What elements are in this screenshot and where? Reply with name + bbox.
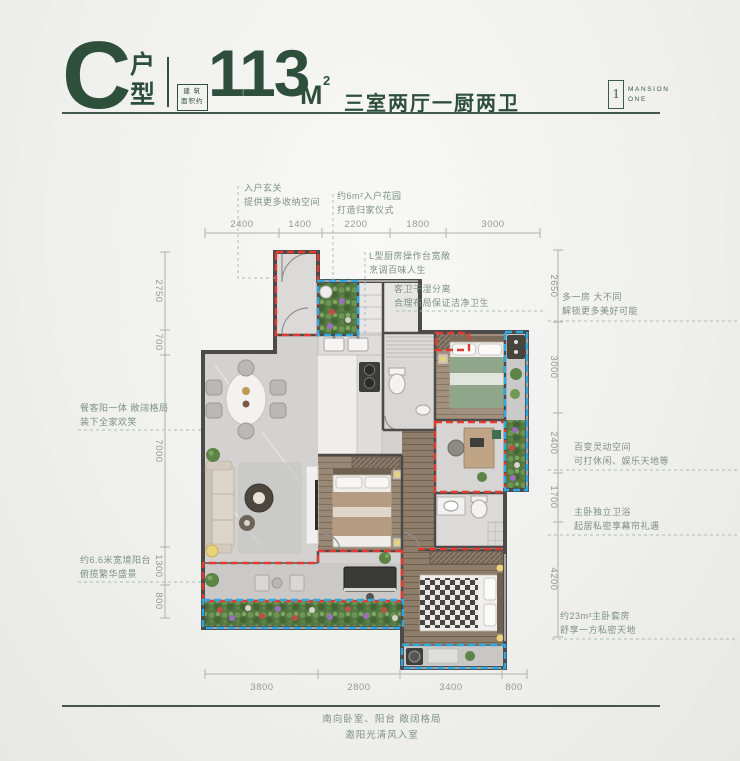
- floor-plan: 2400 1400 2200 1800 3000 3800 2800 3400 …: [0, 0, 740, 761]
- dim-left-5: 800: [153, 592, 164, 609]
- dim-top-1: 2400: [230, 219, 253, 230]
- dim-left-1: 2750: [153, 279, 164, 302]
- hallway: [402, 430, 435, 550]
- annotation-master-bath: 主卧独立卫浴 起居私密享幕帘礼遇: [574, 506, 660, 533]
- dim-right-2: 3000: [548, 355, 559, 378]
- annotation-guest-bath: 客卫干湿分离 合理布局保证洁净卫生: [394, 283, 489, 310]
- dim-top-3: 2200: [344, 219, 367, 230]
- dim-right-5: 4200: [548, 567, 559, 590]
- dim-right-3: 2400: [548, 431, 559, 454]
- dim-top-5: 3000: [481, 219, 504, 230]
- dim-bottom-1: 3800: [250, 682, 273, 693]
- dim-left-4: 1300: [153, 554, 164, 577]
- floorplan-page: C 户 型 建 筑 面积约 113 M 2 三室两厅一厨两卫 1 MANSION…: [0, 0, 740, 761]
- dim-top-4: 1800: [406, 219, 429, 230]
- south-flower-bed: [203, 601, 402, 628]
- dim-bottom-3: 3400: [439, 682, 462, 693]
- dim-right-1: 2650: [548, 274, 559, 297]
- dim-bottom-2: 2800: [347, 682, 370, 693]
- dim-top-2: 1400: [288, 219, 311, 230]
- annotation-master-suite: 约23m²主卧套房 舒享一方私密天地: [560, 610, 636, 637]
- dim-left-3: 7000: [153, 439, 164, 462]
- dim-right-4: 1700: [548, 485, 559, 508]
- annotation-kitchen: L型厨房操作台宽敞 烹调百味人生: [369, 250, 451, 277]
- annotation-wide-balcony: 约6.6米宽境阳台 俯揽繁华盛景: [80, 554, 151, 581]
- footer-rule: [62, 705, 660, 707]
- dim-left-2: 700: [153, 333, 164, 350]
- annotation-dining-balcony: 餐客阳一体 敞阔格局 装下全家欢笑: [80, 402, 169, 429]
- south-orientation-caption: 南向卧室、阳台 敞阔格局 邀阳光清风入室: [242, 712, 522, 744]
- annotation-entry-foyer: 入户玄关 提供更多收纳空间: [244, 182, 320, 209]
- dim-bottom-4: 800: [505, 682, 522, 693]
- annotation-entry-garden: 约6m²入户花园 打造归家仪式: [337, 190, 402, 217]
- annotation-flex-space: 百变灵动空间 可打休闲、娱乐天地等: [574, 441, 669, 468]
- annotation-extra-room: 多一房 大不同 解锁更多美好可能: [562, 291, 638, 318]
